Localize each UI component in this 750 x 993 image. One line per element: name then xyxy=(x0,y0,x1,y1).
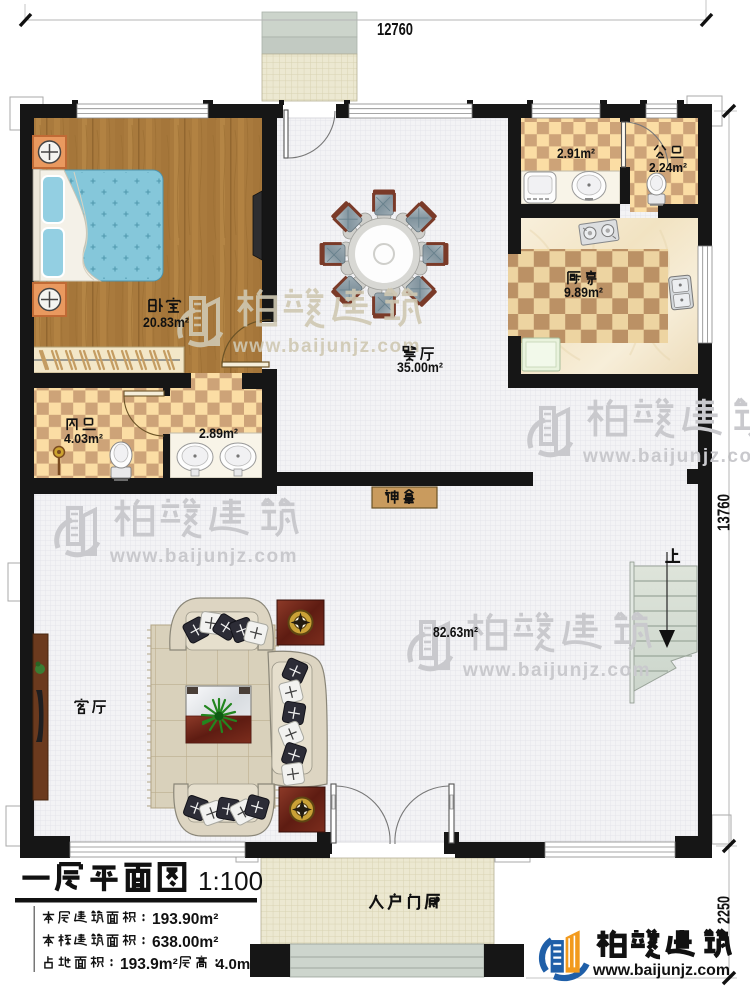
svg-text:2250: 2250 xyxy=(714,896,734,924)
svg-text:www.baijunjz.com: www.baijunjz.com xyxy=(462,660,651,681)
svg-text:13760: 13760 xyxy=(714,494,734,531)
svg-text:www.baijunjz.com: www.baijunjz.com xyxy=(109,546,298,567)
svg-text:82.63m²: 82.63m² xyxy=(433,625,478,641)
svg-text:2.89m²: 2.89m² xyxy=(199,426,238,441)
svg-text:35.00m²: 35.00m² xyxy=(397,360,443,375)
svg-text:4.03m²: 4.03m² xyxy=(64,431,104,446)
svg-text:4.0m: 4.0m xyxy=(216,956,250,973)
svg-text:9.89m²: 9.89m² xyxy=(564,285,603,300)
svg-text:20.83m²: 20.83m² xyxy=(143,315,189,330)
svg-text:2.91m²: 2.91m² xyxy=(557,146,595,161)
svg-text:1:100: 1:100 xyxy=(198,866,263,896)
svg-text:www.baijunjz.com: www.baijunjz.com xyxy=(582,446,750,467)
svg-text:www.baijunjz.com: www.baijunjz.com xyxy=(592,962,730,979)
svg-text:193.90m²: 193.90m² xyxy=(152,911,218,928)
svg-text:638.00m²: 638.00m² xyxy=(152,934,218,951)
svg-text:www.baijunjz.com: www.baijunjz.com xyxy=(232,336,421,357)
svg-text:2.24m²: 2.24m² xyxy=(649,160,688,175)
svg-text:193.9m²: 193.9m² xyxy=(120,956,178,973)
svg-text:12760: 12760 xyxy=(377,19,413,39)
